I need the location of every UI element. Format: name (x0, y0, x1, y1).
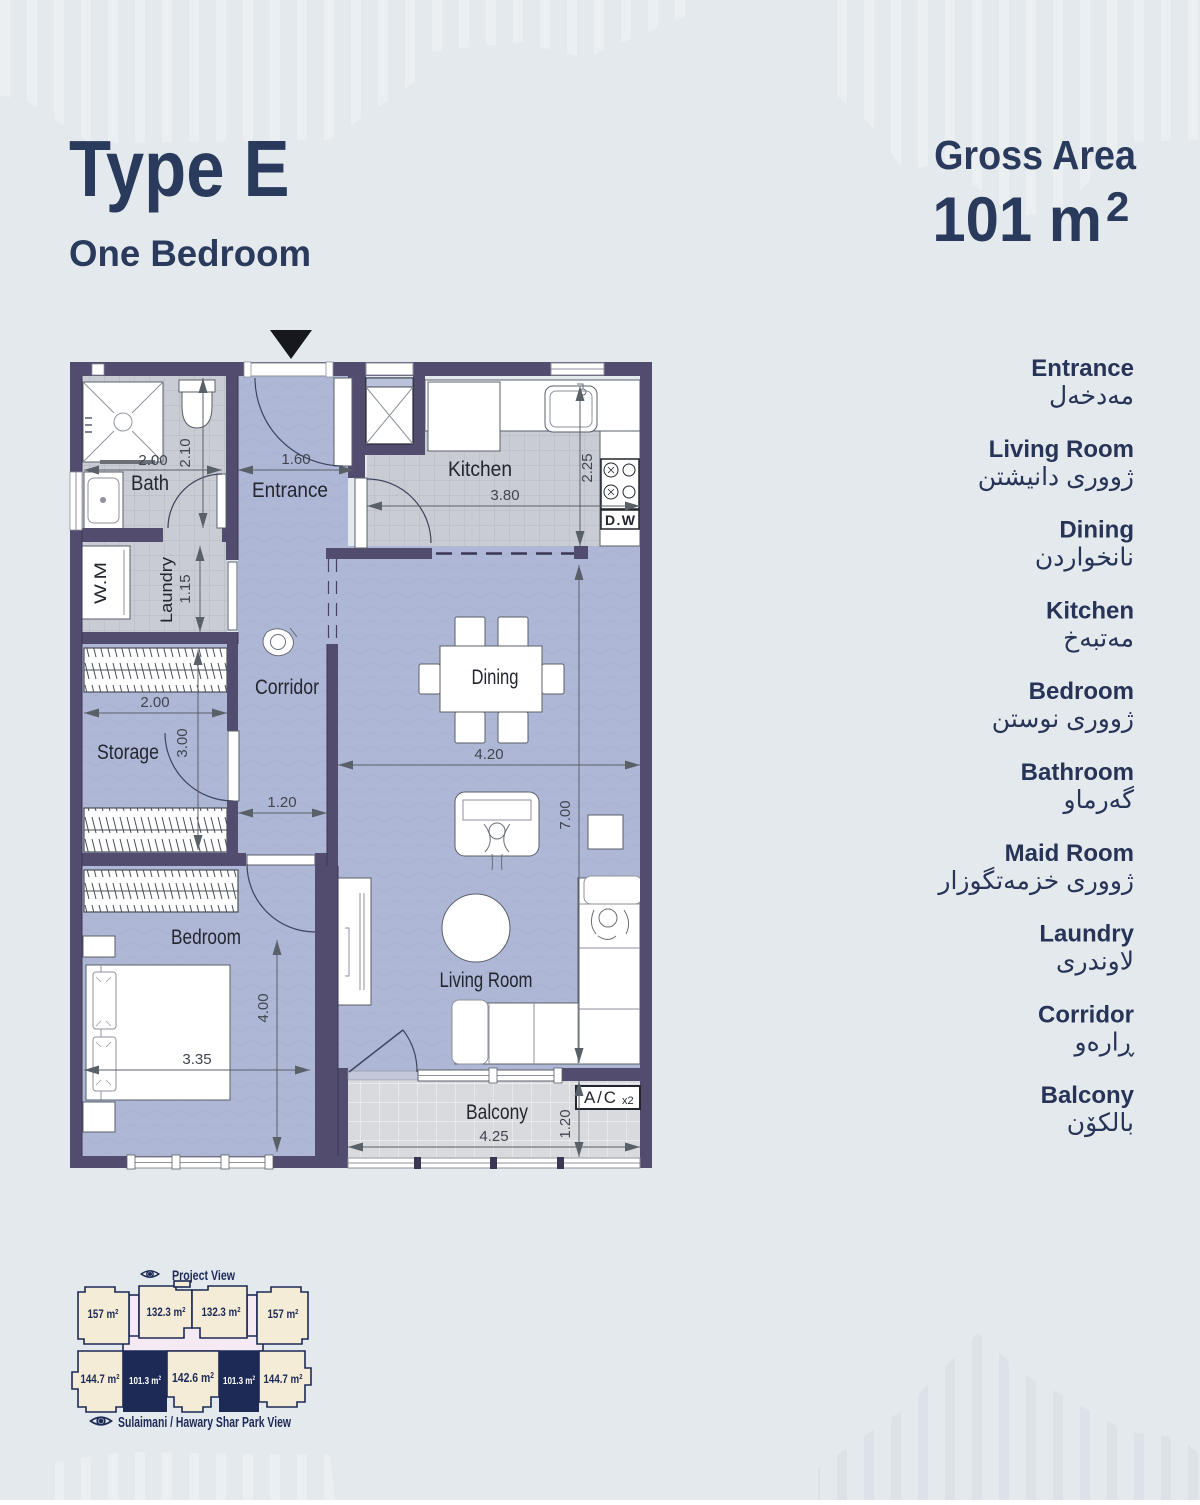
svg-text:101.3 m2: 101.3 m2 (223, 1375, 256, 1387)
svg-text:101 m: 101 m (932, 185, 1102, 256)
svg-text:Gross Area: Gross Area (934, 133, 1137, 179)
svg-text:Living Room: Living Room (989, 436, 1134, 463)
svg-text:Entrance: Entrance (1031, 355, 1134, 382)
svg-text:2.00: 2.00 (140, 694, 169, 711)
svg-text:157 m2: 157 m2 (88, 1309, 119, 1321)
svg-text:1.20: 1.20 (267, 794, 296, 811)
svg-text:4.20: 4.20 (474, 746, 503, 763)
svg-text:Sulaimani / Hawary Shar Park V: Sulaimani / Hawary Shar Park View (118, 1414, 291, 1431)
svg-text:7.00: 7.00 (557, 800, 574, 829)
svg-text:Dining: Dining (1059, 517, 1134, 544)
svg-text:2.25: 2.25 (579, 453, 596, 482)
svg-text:بالكۆن: بالكۆن (1067, 1109, 1134, 1138)
svg-text:Kitchen: Kitchen (448, 458, 512, 481)
svg-text:نانخواردن: نانخواردن (1035, 544, 1134, 573)
svg-text:Kitchen: Kitchen (1046, 597, 1134, 624)
svg-text:Living Room: Living Room (440, 969, 533, 992)
svg-text:لاوندرى: لاوندرى (1056, 948, 1134, 977)
svg-text:4.25: 4.25 (479, 1128, 508, 1145)
svg-text:Maid Room: Maid Room (1005, 840, 1134, 867)
svg-text:144.7 m2: 144.7 m2 (264, 1374, 303, 1386)
svg-text:Corridor: Corridor (1038, 1001, 1134, 1028)
svg-text:142.6 m2: 142.6 m2 (172, 1371, 214, 1385)
svg-text:1.15: 1.15 (177, 574, 194, 603)
svg-text:3.80: 3.80 (490, 487, 519, 504)
svg-text:One Bedroom: One Bedroom (69, 233, 311, 274)
svg-text:144.7 m2: 144.7 m2 (80, 1374, 119, 1386)
svg-text:132.3 m2: 132.3 m2 (147, 1307, 186, 1319)
svg-text:Corridor: Corridor (255, 676, 319, 699)
svg-text:Type E: Type E (69, 123, 289, 213)
svg-text:W.M: W.M (91, 562, 110, 604)
svg-text:2.10: 2.10 (177, 438, 194, 467)
svg-text:1.20: 1.20 (557, 1109, 574, 1138)
svg-text:مەتبەخ: مەتبەخ (1063, 624, 1134, 653)
svg-text:مەدخەل: مەدخەل (1049, 382, 1134, 410)
svg-text:101.3 m2: 101.3 m2 (129, 1375, 162, 1387)
svg-text:A/C: A/C (584, 1088, 616, 1107)
svg-text:Entrance: Entrance (252, 479, 328, 502)
svg-text:Bathroom: Bathroom (1021, 759, 1134, 786)
svg-text:Bedroom: Bedroom (171, 926, 241, 949)
svg-text:گەرماو: گەرماو (1062, 785, 1135, 815)
svg-text:3.00: 3.00 (174, 728, 191, 757)
svg-text:x2: x2 (622, 1095, 634, 1107)
svg-text:Balcony: Balcony (1041, 1082, 1135, 1109)
svg-text:Dining: Dining (472, 666, 519, 689)
svg-text:ژوورى دانيشتن: ژوورى دانيشتن (978, 463, 1134, 492)
svg-text:Balcony: Balcony (466, 1101, 528, 1124)
svg-text:Laundry: Laundry (1039, 921, 1134, 948)
svg-text:1.60: 1.60 (281, 451, 310, 468)
svg-text:ژوورى نوستن: ژوورى نوستن (992, 705, 1134, 734)
svg-text:Bedroom: Bedroom (1029, 678, 1134, 705)
svg-text:132.3 m2: 132.3 m2 (202, 1307, 241, 1319)
svg-text:2.00: 2.00 (138, 452, 167, 469)
svg-text:2: 2 (1106, 183, 1129, 230)
svg-text:Project View: Project View (172, 1267, 235, 1283)
svg-text:3.35: 3.35 (182, 1051, 211, 1068)
svg-text:ڕارەو: ڕارەو (1073, 1028, 1135, 1057)
svg-text:D.W: D.W (605, 512, 636, 528)
svg-text:Storage: Storage (97, 741, 159, 764)
svg-text:ژوورى خزمەتگوزار: ژوورى خزمەتگوزار (936, 866, 1134, 896)
svg-text:Bath: Bath (131, 472, 169, 495)
svg-text:4.00: 4.00 (255, 993, 272, 1022)
svg-text:157 m2: 157 m2 (268, 1309, 299, 1321)
svg-text:Laundry: Laundry (157, 556, 176, 623)
